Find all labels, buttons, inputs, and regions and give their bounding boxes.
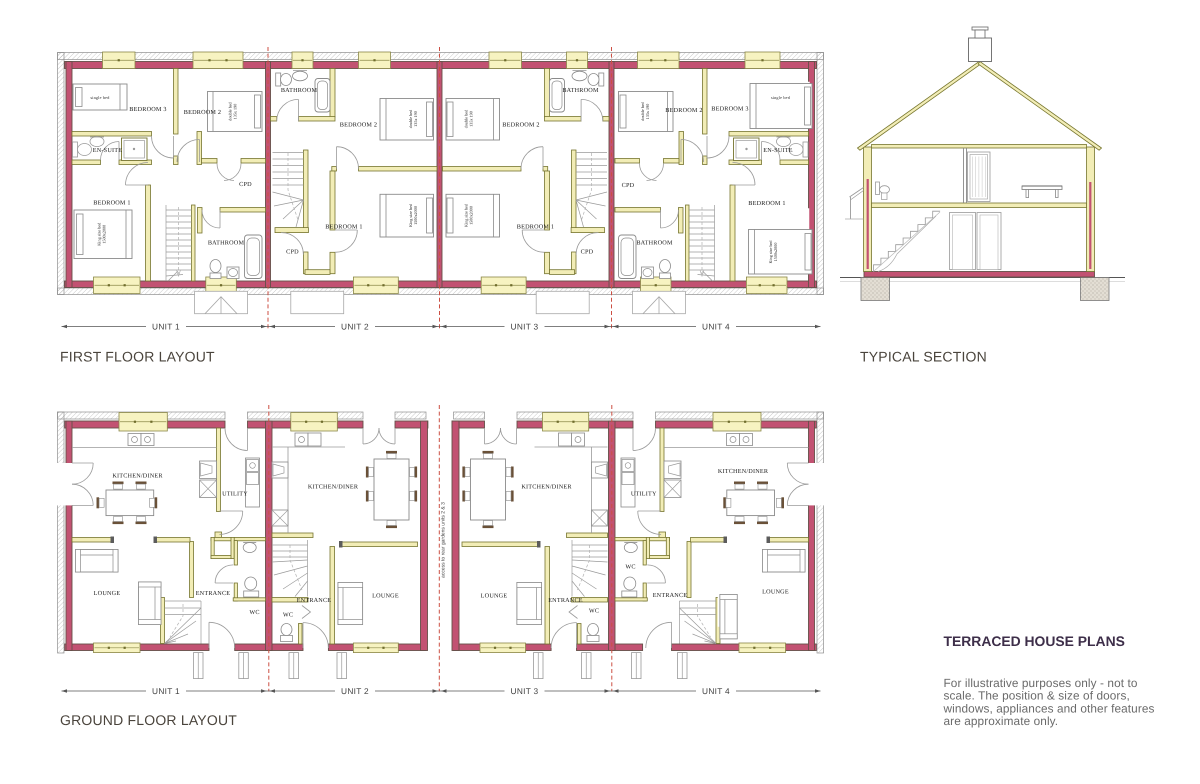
svg-text:BATHROOM: BATHROOM [636,240,673,247]
svg-text:BEDROOM 1: BEDROOM 1 [748,200,785,207]
svg-text:UNIT 3: UNIT 3 [511,686,539,696]
svg-text:single bed: single bed [90,95,110,100]
svg-text:BEDROOM 2: BEDROOM 2 [665,107,702,114]
svg-text:ENTRANCE: ENTRANCE [653,592,688,599]
svg-text:135x 190: 135x 190 [645,104,650,120]
svg-text:EN-SUITE: EN-SUITE [93,147,122,154]
svg-text:BEDROOM 3: BEDROOM 3 [711,106,748,113]
svg-text:UTILITY: UTILITY [631,491,657,498]
svg-text:KITCHEN/DINER: KITCHEN/DINER [521,484,572,491]
svg-text:KITCHEN/DINER: KITCHEN/DINER [308,484,359,491]
svg-text:135x 190: 135x 190 [469,111,474,127]
svg-text:BEDROOM 1: BEDROOM 1 [93,200,130,207]
svg-text:WC: WC [283,612,293,619]
svg-text:BEDROOM 2: BEDROOM 2 [502,122,539,129]
svg-text:UNIT 1: UNIT 1 [152,686,180,696]
svg-text:UNIT 1: UNIT 1 [152,321,180,331]
svg-text:KITCHEN/DINER: KITCHEN/DINER [718,468,769,475]
svg-text:LOUNGE: LOUNGE [762,589,789,596]
svg-text:BATHROOM: BATHROOM [208,240,245,247]
svg-text:CPD: CPD [286,249,299,256]
svg-text:BATHROOM: BATHROOM [281,87,318,94]
svg-text:1500x2000: 1500x2000 [102,225,107,244]
svg-text:BEDROOM 2: BEDROOM 2 [340,122,377,129]
svg-text:UNIT 4: UNIT 4 [702,686,730,696]
svg-text:single bed: single bed [771,95,791,100]
svg-text:TYPICAL SECTION: TYPICAL SECTION [860,349,987,365]
svg-text:LOUNGE: LOUNGE [481,593,508,600]
svg-text:UNIT 4: UNIT 4 [702,321,730,331]
svg-text:CPD: CPD [581,249,594,256]
svg-text:UNIT 2: UNIT 2 [341,686,369,696]
svg-text:WC: WC [625,564,635,571]
svg-text:135x 190: 135x 190 [233,104,238,120]
svg-text:LOUNGE: LOUNGE [94,590,121,597]
svg-text:CPD: CPD [622,182,635,189]
svg-text:EN-SUITE: EN-SUITE [763,147,792,154]
svg-text:CPD: CPD [239,181,252,188]
svg-text:135x 190: 135x 190 [413,111,418,127]
svg-text:FIRST FLOOR LAYOUT: FIRST FLOOR LAYOUT [60,349,215,365]
svg-text:1500x2000: 1500x2000 [413,206,418,225]
svg-text:access to rear gardens units 2: access to rear gardens units 2 & 3 [441,502,447,578]
svg-text:WC: WC [249,609,259,616]
svg-text:WC: WC [589,608,599,615]
svg-text:ENTRANCE: ENTRANCE [196,590,231,597]
svg-text:BEDROOM 2: BEDROOM 2 [184,109,221,116]
svg-text:ENTRANCE: ENTRANCE [297,597,332,604]
svg-text:LOUNGE: LOUNGE [372,593,399,600]
svg-text:are approximate only.: are approximate only. [944,714,1059,728]
svg-text:ENTRANCE: ENTRANCE [548,597,583,604]
svg-text:KITCHEN/DINER: KITCHEN/DINER [112,473,163,480]
svg-text:1500x2000: 1500x2000 [773,243,778,262]
svg-text:1500x2000: 1500x2000 [469,206,474,225]
svg-text:UNIT 3: UNIT 3 [511,321,539,331]
svg-text:UTILITY: UTILITY [222,491,248,498]
svg-text:BEDROOM 1: BEDROOM 1 [325,224,362,231]
svg-text:TERRACED HOUSE PLANS: TERRACED HOUSE PLANS [944,633,1125,649]
svg-text:BEDROOM 3: BEDROOM 3 [129,106,166,113]
svg-text:GROUND FLOOR LAYOUT: GROUND FLOOR LAYOUT [60,712,237,728]
svg-text:UNIT 2: UNIT 2 [341,321,369,331]
svg-text:BATHROOM: BATHROOM [562,87,599,94]
svg-text:BEDROOM 1: BEDROOM 1 [517,224,554,231]
